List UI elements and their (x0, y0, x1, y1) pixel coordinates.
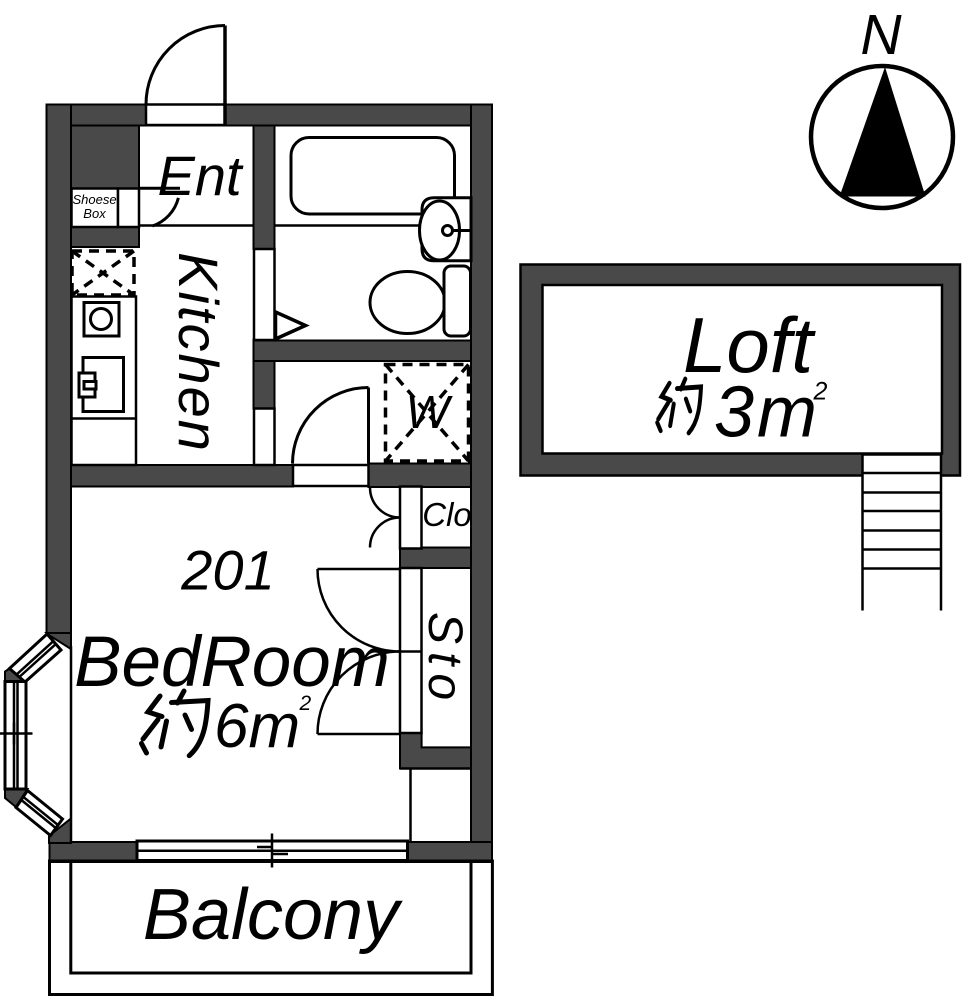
svg-text:Kitchen: Kitchen (167, 252, 230, 453)
svg-text:Clo: Clo (422, 496, 472, 533)
svg-text:2: 2 (813, 378, 828, 406)
svg-text:BedRoom: BedRoom (74, 623, 390, 702)
svg-text:3m: 3m (714, 373, 820, 453)
svg-text:201: 201 (180, 539, 274, 602)
svg-text:Balcony: Balcony (143, 875, 403, 955)
svg-text:Sto: Sto (418, 612, 471, 708)
svg-text:W: W (406, 386, 454, 438)
svg-text:2: 2 (299, 692, 312, 715)
svg-text:6m: 6m (214, 692, 300, 761)
svg-text:Shoese: Shoese (72, 192, 116, 207)
svg-text:N: N (860, 3, 902, 67)
svg-text:Box: Box (83, 206, 106, 221)
svg-text:Ent: Ent (157, 144, 243, 207)
